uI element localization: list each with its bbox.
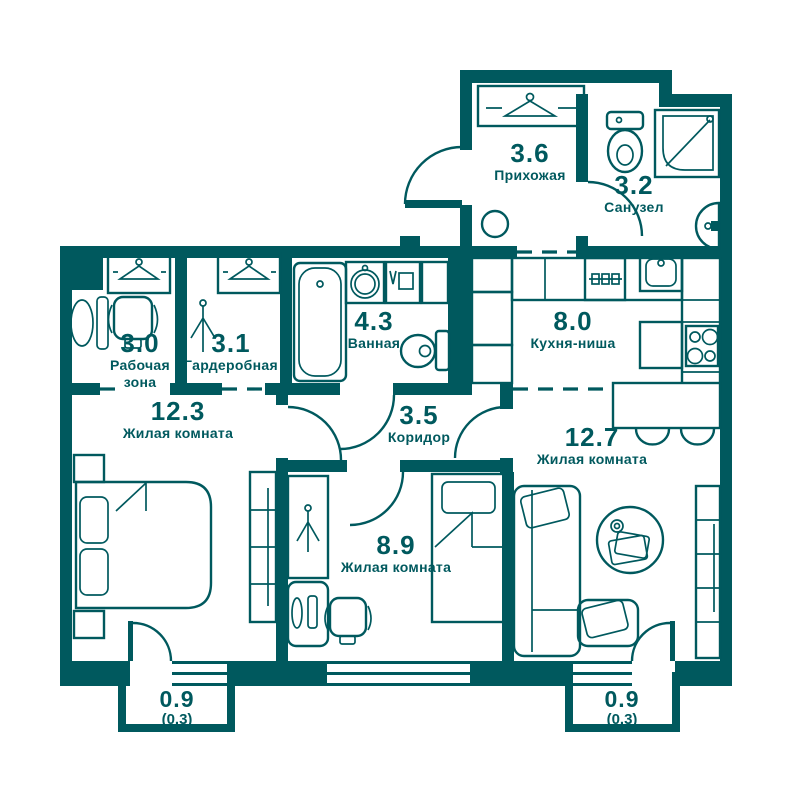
- room-label-wc: 3.2 Санузел: [604, 172, 664, 216]
- pillow: [80, 497, 108, 543]
- wall: [460, 70, 472, 150]
- room-label-kitchen: 8.0 Кухня-ниша: [530, 308, 615, 352]
- room-label-hallway: 3.6 Прихожая: [494, 140, 565, 184]
- room-label-workzone: 3.0 Рабочая зона: [97, 330, 183, 391]
- wall: [400, 460, 513, 472]
- desk-icon: [288, 582, 328, 646]
- balcony-area: 0.9: [160, 688, 195, 711]
- room-area: 8.9: [341, 532, 451, 559]
- room-name: Рабочая зона: [97, 357, 183, 391]
- window-room-8-9: [327, 661, 470, 686]
- window-balcony-left: [172, 661, 227, 686]
- hanger-icon: [486, 94, 578, 117]
- wc-sink-icon: [696, 203, 719, 249]
- wall-left: [60, 246, 72, 686]
- wall: [720, 94, 732, 258]
- cushion: [581, 599, 629, 638]
- room-name: Санузел: [604, 199, 664, 216]
- window-balcony-right: [573, 661, 632, 686]
- room-name: Ванная: [348, 335, 401, 352]
- office-chair-icon: [325, 598, 371, 644]
- room-label-living-1: 12.3 Жилая комната: [123, 398, 233, 442]
- wall-bottom: [470, 661, 573, 686]
- balcony-door-left: [128, 621, 171, 661]
- wall: [460, 70, 672, 83]
- washing-machine-icon: [386, 262, 420, 303]
- balcony-left-label: 0.9 (0.3): [160, 688, 195, 728]
- room-label-wardrobe: 3.1 Гардеробная: [184, 330, 278, 374]
- pillow: [80, 549, 108, 595]
- bath-sink-icon: [346, 262, 384, 303]
- stove-icon: [686, 326, 718, 366]
- balcony-right-label: 0.9 (0.3): [605, 688, 640, 728]
- wardrobe-hanger-recess: [218, 253, 280, 293]
- room-label-bathroom: 4.3 Ванная: [348, 308, 401, 352]
- floor-plan: 3.6 Прихожая 3.2 Санузел 3.0 Рабочая зон…: [0, 0, 800, 800]
- wall: [288, 460, 347, 472]
- room-name: Коридор: [388, 429, 450, 446]
- room-area: 3.6: [494, 140, 565, 167]
- dishwasher-icon: [589, 274, 622, 284]
- hanger-icon: [113, 259, 166, 279]
- balcony-area-reduced: (0.3): [605, 711, 640, 728]
- room-area: 12.3: [123, 398, 233, 425]
- rug-icon: [597, 507, 663, 573]
- room-area: 3.1: [184, 330, 278, 357]
- wall-bottom: [675, 661, 732, 686]
- entrance-door: [405, 147, 462, 208]
- wall: [502, 472, 514, 686]
- bath-cabinet: [422, 262, 448, 303]
- wall: [276, 383, 288, 405]
- room-area: 3.0: [97, 330, 183, 357]
- bath-toilet-icon: [401, 331, 449, 370]
- balcony-area: 0.9: [605, 688, 640, 711]
- cushion: [520, 487, 570, 529]
- bathtub-icon: [294, 263, 346, 381]
- shower-icon: [655, 110, 719, 177]
- hallway-closet: [478, 86, 584, 126]
- balcony-area-reduced: (0.3): [160, 711, 195, 728]
- wall: [448, 258, 472, 395]
- chair-icon: [681, 429, 714, 444]
- room-name: Жилая комната: [341, 559, 451, 576]
- room-name: Жилая комната: [123, 425, 233, 442]
- room-8-9-door-arc: [350, 472, 403, 525]
- room-area: 8.0: [530, 308, 615, 335]
- kitchen-door-arc: [455, 407, 506, 458]
- wall: [393, 383, 472, 395]
- wardrobe-icon: [250, 472, 276, 622]
- room-label-living-3: 8.9 Жилая комната: [341, 532, 451, 576]
- room-label-corridor: 3.5 Коридор: [388, 402, 450, 446]
- kitchen-cabinets-left: [472, 258, 512, 383]
- room-label-living-2: 12.7 Жилая комната: [537, 424, 647, 468]
- nightstand: [74, 455, 104, 482]
- double-bed-icon: [74, 455, 211, 638]
- room-area: 4.3: [348, 308, 401, 335]
- kitchen-counter-right: [640, 258, 720, 390]
- wall: [276, 458, 288, 686]
- room-name: Гардеробная: [184, 357, 278, 374]
- wall-bottom: [227, 661, 327, 686]
- mirror-circle: [482, 211, 508, 237]
- room-12-3-door-arc: [288, 407, 341, 460]
- workzone-hanger-recess: [108, 253, 170, 293]
- hanger-icon: [223, 259, 276, 279]
- wall: [60, 383, 100, 395]
- wardrobe-icon: [696, 486, 720, 658]
- nightstand: [74, 611, 104, 638]
- bathroom-door-arc: [340, 395, 394, 449]
- room-area: 12.7: [537, 424, 647, 451]
- wall: [292, 383, 340, 395]
- wall: [472, 246, 517, 258]
- wall-right: [720, 258, 732, 686]
- wall: [500, 383, 513, 409]
- room-name: Кухня-ниша: [530, 335, 615, 352]
- room-area: 3.5: [388, 402, 450, 429]
- closet-icon: [288, 476, 328, 578]
- room-name: Прихожая: [494, 167, 565, 184]
- kitchen-counter-top: [512, 258, 682, 300]
- coat-stand-icon: [297, 505, 319, 552]
- room-area: 3.2: [604, 172, 664, 199]
- wall: [280, 258, 292, 383]
- toilet-icon: [607, 112, 643, 172]
- room-name: Жилая комната: [537, 451, 647, 468]
- pillow: [442, 482, 495, 513]
- shaft-pylon: [72, 258, 103, 290]
